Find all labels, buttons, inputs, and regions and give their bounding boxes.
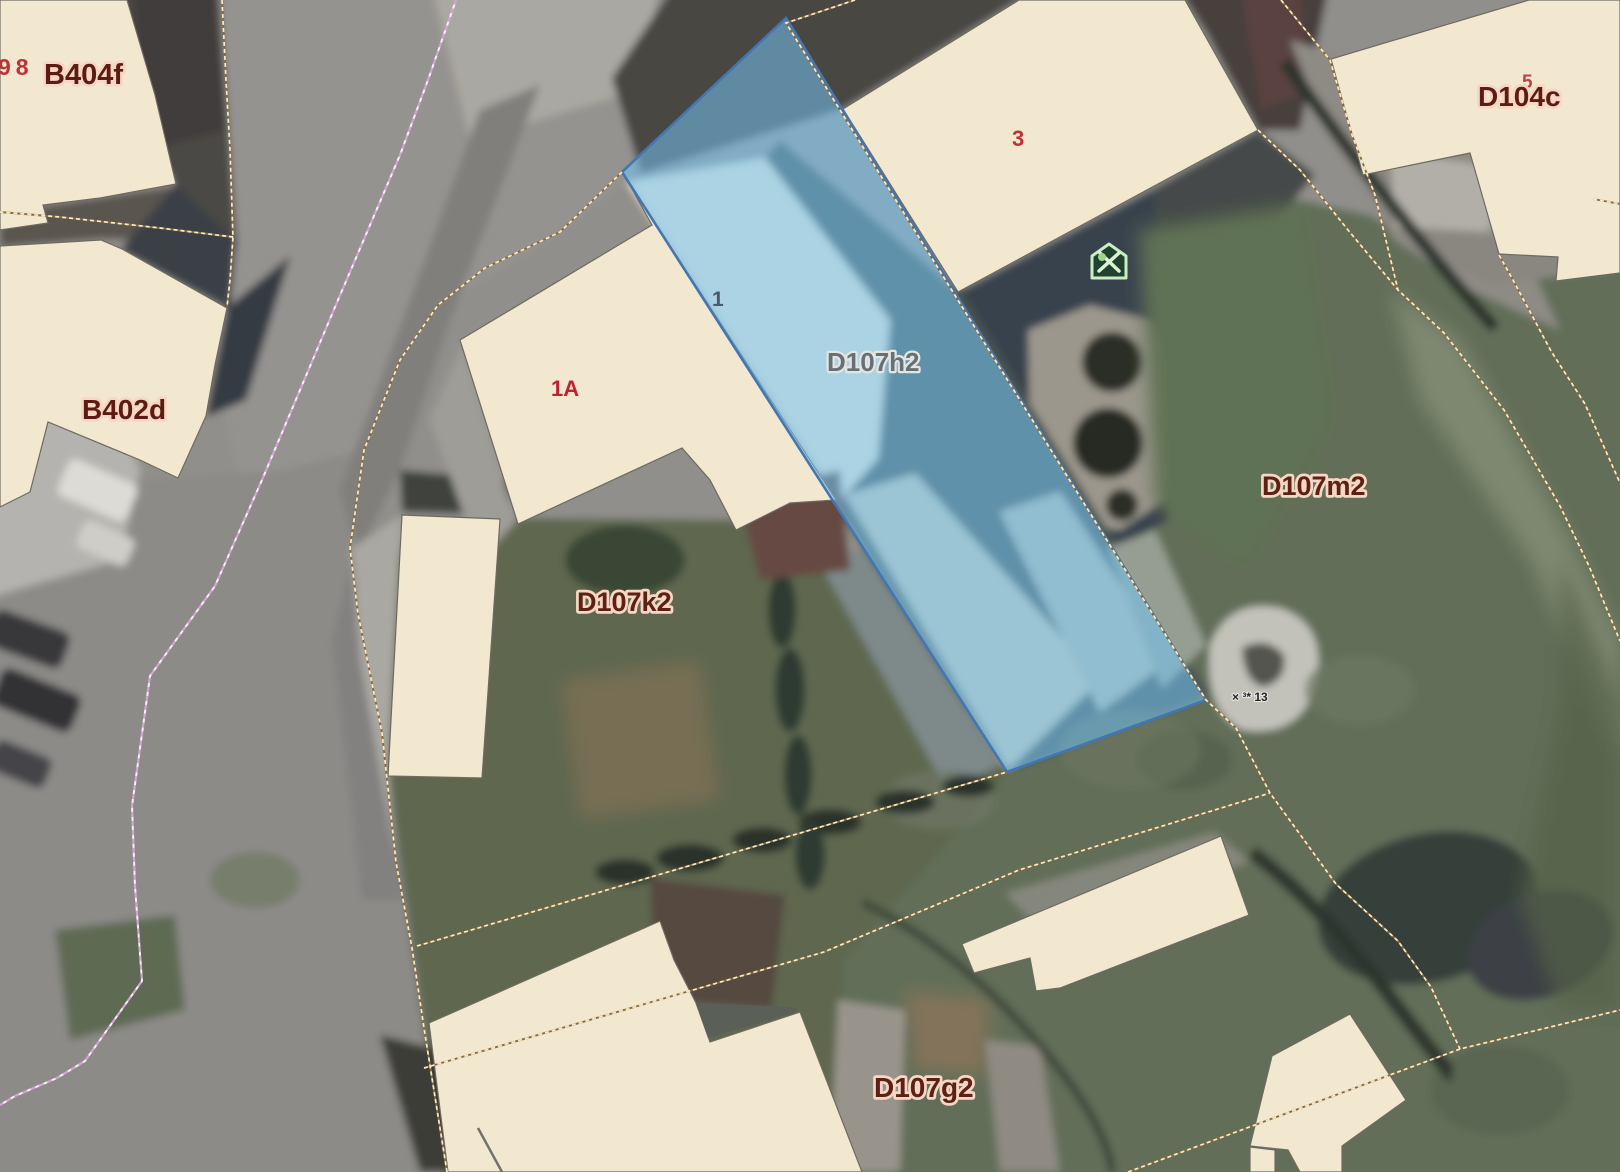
svg-text:B402d: B402d (82, 394, 166, 425)
svg-text:D107h2: D107h2 (827, 347, 920, 377)
svg-text:D107m2: D107m2 (1262, 471, 1366, 501)
svg-text:3: 3 (1012, 126, 1024, 151)
svg-text:× ³* 13: × ³* 13 (1232, 690, 1268, 704)
svg-text:D107k2: D107k2 (577, 587, 672, 617)
svg-text:1: 1 (712, 288, 724, 311)
svg-text:D104c: D104c (1478, 81, 1561, 112)
svg-text:D107g2: D107g2 (874, 1072, 974, 1103)
svg-text:98: 98 (0, 54, 34, 80)
svg-text:1A: 1A (551, 376, 579, 401)
svg-text:B404f: B404f (44, 59, 123, 91)
